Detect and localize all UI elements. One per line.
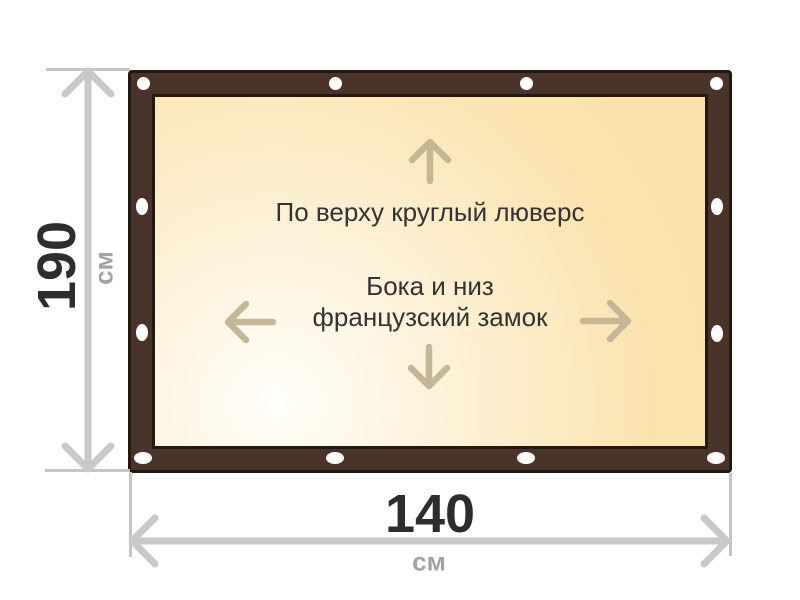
grommet-hole-icon xyxy=(707,452,725,464)
grommet-hole-icon xyxy=(710,77,723,90)
grommet-hole-icon xyxy=(711,325,723,342)
height-unit: см xyxy=(89,251,120,285)
grommet-hole-icon xyxy=(329,77,342,90)
grommet-hole-icon xyxy=(137,77,150,90)
grommet-hole-icon xyxy=(711,198,723,215)
grommet-hole-icon xyxy=(136,324,148,341)
height-value: 190 xyxy=(26,221,88,311)
top-edge-annotation: По верху круглый люверс xyxy=(158,197,702,228)
grommet-hole-icon xyxy=(520,77,533,90)
grommet-hole-icon xyxy=(136,198,148,215)
grommet-hole-icon xyxy=(517,452,535,464)
annotation-line-1: Бока и низ xyxy=(158,271,702,302)
arrow-down-icon xyxy=(405,344,453,392)
sides-bottom-annotation: Бока и низ французский замок xyxy=(158,271,702,333)
width-value: 140 xyxy=(385,483,475,545)
width-unit: см xyxy=(412,547,446,578)
arrow-up-icon xyxy=(406,136,454,184)
grommet-hole-icon xyxy=(134,452,152,464)
grommet-hole-icon xyxy=(326,452,344,464)
tarp-dimension-diagram: По верху круглый люверс Бока и низ франц… xyxy=(0,0,800,600)
annotation-line-2: французский замок xyxy=(158,302,702,333)
